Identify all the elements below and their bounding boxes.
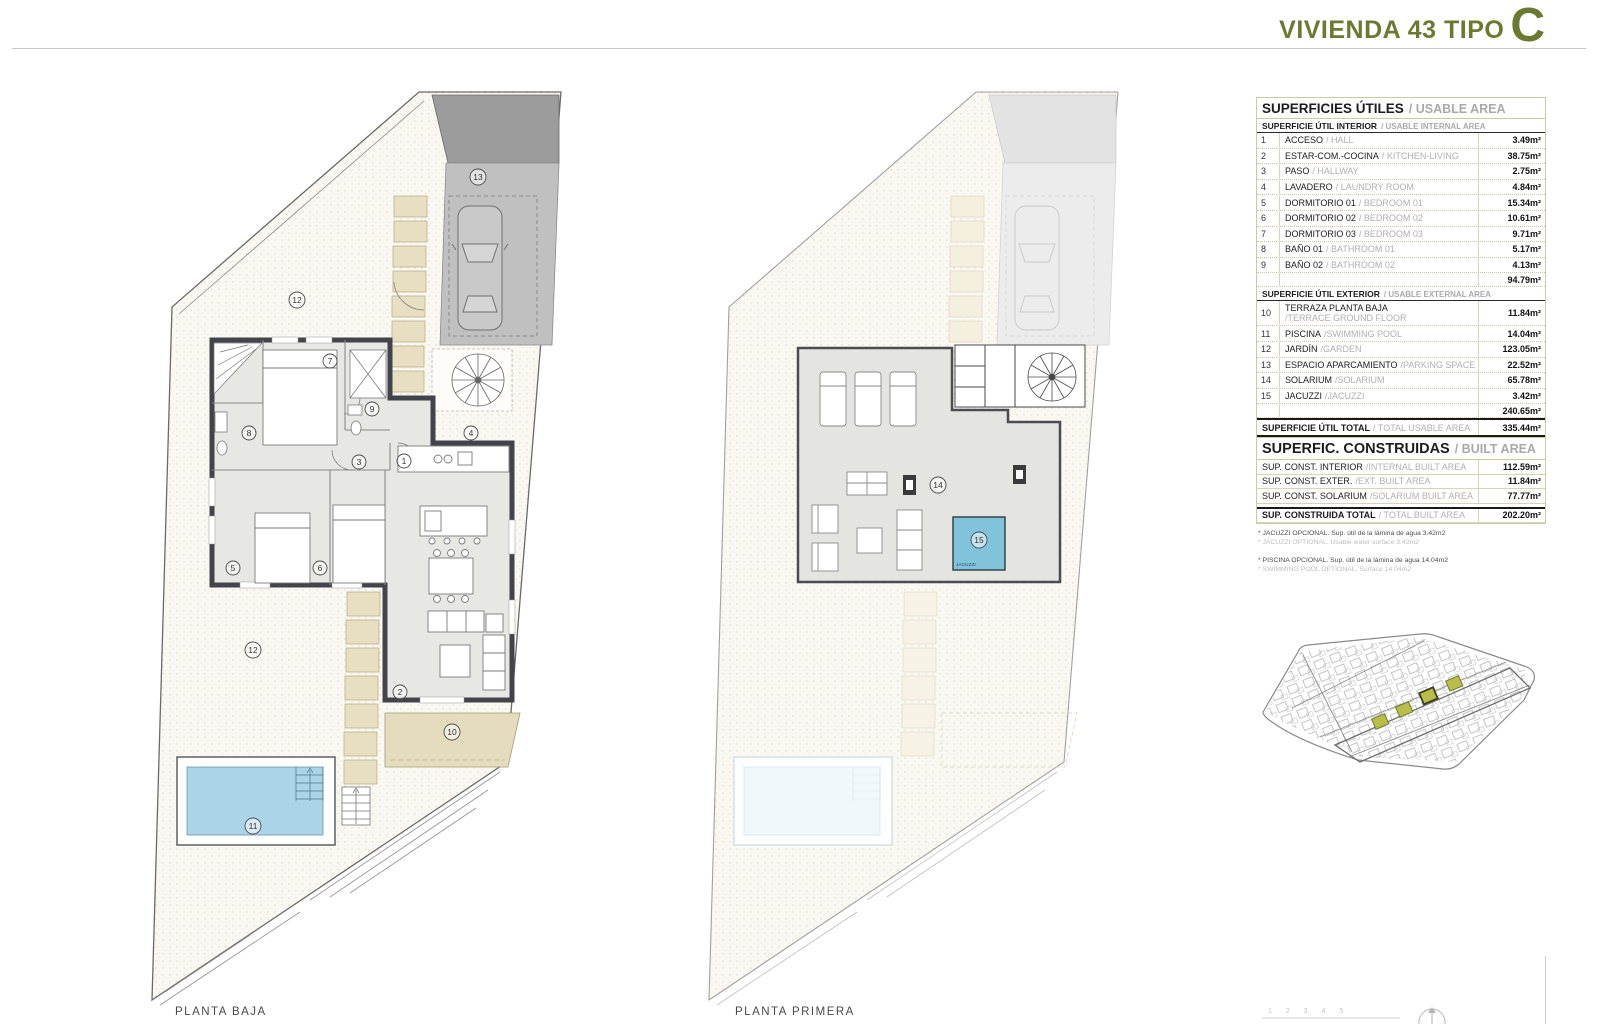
spiral-stair-icon [452, 354, 504, 406]
type-letter: C [1510, 6, 1545, 46]
usable-total-row: SUPERFICIE ÚTIL TOTAL/ TOTAL USABLE AREA… [1257, 418, 1545, 437]
exterior-subtotal-row: .240.65m² [1257, 404, 1545, 418]
table-row: 12JARDÍN/GARDEN123.05m² [1257, 342, 1545, 358]
room-marker-8: 8 [242, 426, 256, 440]
table-row: 7DORMITORIO 03/ BEDROOM 039.71m² [1257, 227, 1545, 243]
room-marker-7: 7 [323, 354, 337, 368]
table-row: 3PASO/ HALLWAY2.75m² [1257, 164, 1545, 180]
svg-text:JACUZZI: JACUZZI [956, 562, 976, 568]
table-row: 6DORMITORIO 02/ BEDROOM 0210.61m² [1257, 211, 1545, 227]
interior-subheader: SUPERFICIE ÚTIL INTERIOR/ USABLE INTERNA… [1257, 119, 1545, 133]
table-row: 1ACCESO/ HALL3.49m² [1257, 133, 1545, 149]
table-row: 2ESTAR-COM.-COCINA/ KITCHEN-LIVING38.75m… [1257, 149, 1545, 165]
svg-text:7: 7 [328, 356, 333, 366]
svg-text:13: 13 [473, 172, 483, 182]
table-row: 10TERRAZA PLANTA BAJA/TERRACE GROUND FLO… [1257, 301, 1545, 326]
site-map [1263, 634, 1534, 769]
sheet-title: VIVIENDA 43 TIPO C [1279, 6, 1545, 46]
room-marker-12b: 12 [245, 642, 261, 658]
built-table-title: SUPERFIC. CONSTRUIDAS / BUILT AREA [1257, 438, 1545, 460]
footnote-pool-es: * PISCINA OPCIONAL. Sup. útil de la lámi… [1258, 556, 1548, 565]
svg-text:4: 4 [469, 428, 474, 438]
svg-text:12: 12 [292, 295, 302, 305]
spiral-stair-icon-first [1028, 353, 1076, 401]
table-row: SUP. CONST. SOLARIUM/SOLARIUM BUILT AREA… [1257, 489, 1545, 504]
built-total-row: SUP. CONSTRUIDA TOTAL/ TOTAL BUILT AREA … [1257, 507, 1545, 524]
plan-planta-baja: 1 2 3 4 5 6 7 8 9 10 11 12 12 13 PLANTA … [152, 92, 561, 1018]
plan-label-first: PLANTA PRIMERA [735, 1006, 855, 1018]
room-marker-10: 10 [444, 724, 460, 740]
neighbour-block [432, 95, 559, 163]
room-marker-11: 11 [245, 818, 261, 834]
svg-text:11: 11 [249, 821, 258, 831]
svg-text:10: 10 [447, 727, 457, 737]
table-row: 8BAÑO 01/ BATHROOM 015.17m² [1257, 242, 1545, 258]
room-marker-3: 3 [352, 455, 366, 469]
room-marker-6: 6 [313, 561, 327, 575]
room-marker-12a: 12 [289, 292, 305, 308]
plan-planta-primera: JACUZZI 14 15 PLANTA PRIMERA [709, 92, 1118, 1018]
table-row: 11PISCINA/SWIMMING POOL14.04m² [1257, 326, 1545, 342]
top-rule [12, 48, 1586, 49]
room-marker-4: 4 [464, 426, 478, 440]
svg-text:1 2 3 4 5: 1 2 3 4 5 [1268, 1008, 1349, 1015]
ghost-pool [734, 757, 892, 845]
room-marker-5: 5 [226, 561, 240, 575]
room-marker-13: 13 [470, 169, 486, 185]
footnotes: * JACUZZI OPCIONAL. Sup. útil de la lámi… [1258, 529, 1548, 583]
footnote-jacuzzi-en: * JACUZZI OPTIONAL. Usable water surface… [1258, 538, 1548, 547]
svg-text:14: 14 [933, 480, 943, 490]
exterior-subheader: SUPERFICIE ÚTIL EXTERIOR/ USABLE EXTERNA… [1257, 287, 1545, 301]
wardrobe-icon [350, 350, 386, 398]
plan-label-ground: PLANTA BAJA [175, 1006, 267, 1018]
room-marker-15: 15 [971, 532, 987, 548]
table-row: 9BAÑO 02/ BATHROOM 024.13m² [1257, 258, 1545, 274]
right-rule [1545, 956, 1546, 1024]
usable-title-es: SUPERFICIES ÚTILES [1262, 101, 1404, 116]
svg-text:6: 6 [318, 563, 323, 573]
svg-text:5: 5 [231, 563, 236, 573]
table-row: 14SOLARIUM/SOLARIUM65.78m² [1257, 373, 1545, 389]
svg-text:1: 1 [402, 456, 407, 466]
svg-text:3: 3 [357, 457, 362, 467]
table-row: 13ESPACIO APARCAMIENTO/PARKING SPACE22.5… [1257, 358, 1545, 374]
table-row: SUP. CONST. INTERIOR/INTERNAL BUILT AREA… [1257, 460, 1545, 475]
built-title-en: / BUILT AREA [1455, 442, 1536, 456]
table-row: 15JACUZZI/JACUZZI3.42m² [1257, 389, 1545, 405]
svg-text:15: 15 [974, 535, 984, 545]
table-row: 5DORMITORIO 01/ BEDROOM 0115.34m² [1257, 195, 1545, 211]
svg-text:9: 9 [370, 404, 375, 414]
built-area-table: SUPERFIC. CONSTRUIDAS / BUILT AREA SUP. … [1256, 437, 1546, 524]
sheet: 1 2 3 4 5 6 7 8 9 10 11 12 12 13 PLANTA … [0, 0, 1600, 1024]
sun-lounger-icons [820, 372, 916, 426]
compass-icon [1419, 1007, 1445, 1024]
footnote-pool-en: * SWIMMING POOL OPTIONAL. Surface 14.04m… [1258, 565, 1548, 574]
svg-text:2: 2 [398, 687, 403, 697]
exterior-stairs [342, 787, 370, 825]
car-icon [452, 206, 508, 330]
room-marker-9: 9 [365, 402, 379, 416]
garden-steps-lower [344, 592, 380, 784]
usable-area-table: SUPERFICIES ÚTILES / USABLE AREA SUPERFI… [1256, 97, 1546, 438]
table-row: SUP. CONST. EXTER./EXT. BUILT AREA11.84m… [1257, 475, 1545, 490]
footnote-jacuzzi-es: * JACUZZI OPCIONAL. Sup. útil de la lámi… [1258, 529, 1548, 538]
svg-text:12: 12 [248, 645, 258, 655]
svg-text:8: 8 [247, 428, 252, 438]
interior-subtotal-row: .94.79m² [1257, 273, 1545, 287]
table-row: 4LAVADERO/ LAUNDRY ROOM4.84m² [1257, 180, 1545, 196]
built-title-es: SUPERFIC. CONSTRUIDAS [1262, 441, 1450, 457]
scale-bar: 1 2 3 4 5 [1262, 1008, 1400, 1018]
usable-title-en: / USABLE AREA [1409, 102, 1506, 116]
usable-table-title: SUPERFICIES ÚTILES / USABLE AREA [1257, 98, 1545, 119]
room-marker-1: 1 [397, 454, 411, 468]
room-marker-2: 2 [393, 685, 407, 699]
room-marker-14: 14 [930, 477, 946, 493]
project-title: VIVIENDA 43 TIPO [1279, 16, 1504, 45]
